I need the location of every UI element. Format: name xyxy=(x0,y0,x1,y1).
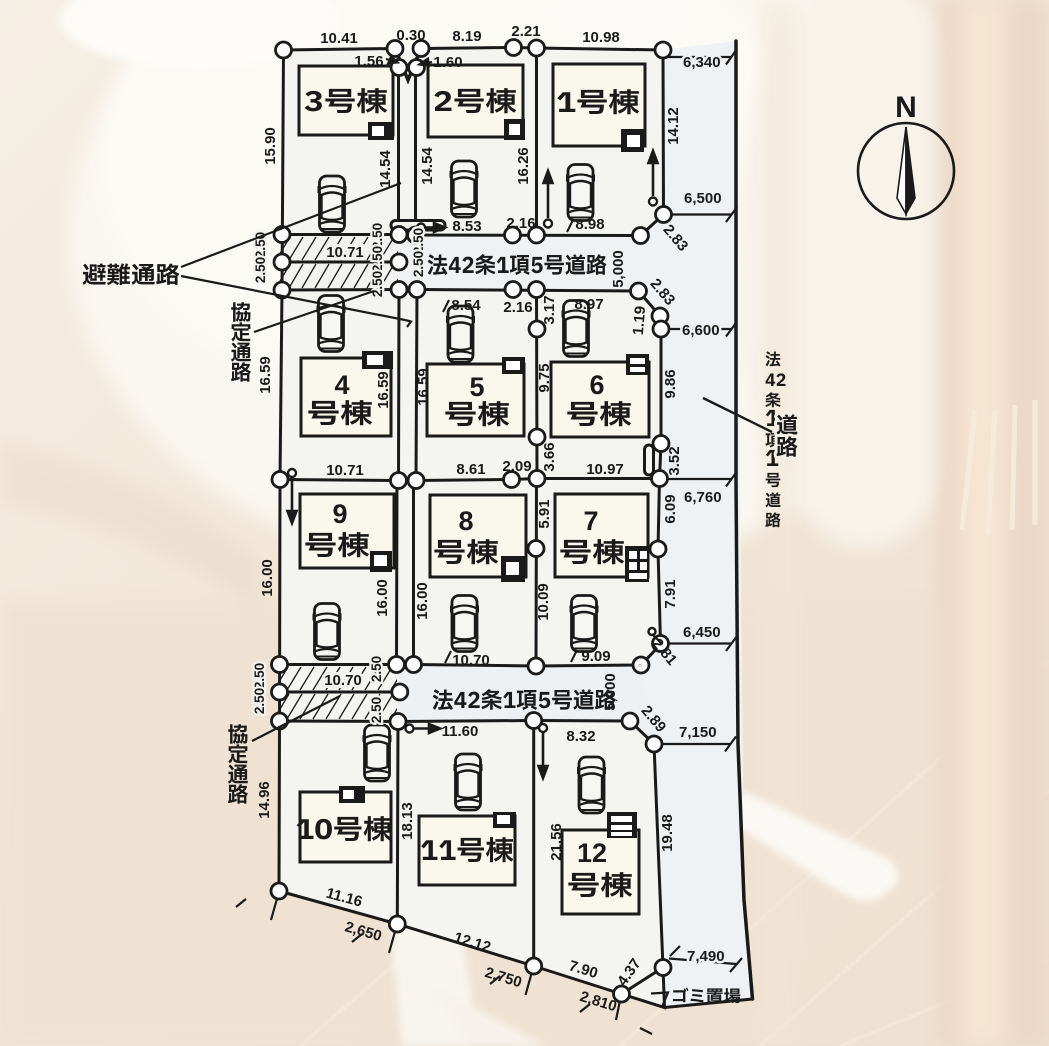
svg-text:11.60: 11.60 xyxy=(442,723,479,740)
svg-text:2.21: 2.21 xyxy=(511,23,540,40)
svg-text:0.30: 0.30 xyxy=(396,27,425,44)
svg-text:6,450: 6,450 xyxy=(683,624,721,641)
svg-text:8.53: 8.53 xyxy=(452,218,481,235)
svg-text:1.19: 1.19 xyxy=(630,305,649,336)
svg-text:2.50: 2.50 xyxy=(370,246,385,272)
svg-text:19.48: 19.48 xyxy=(659,814,676,852)
svg-text:2.50: 2.50 xyxy=(252,663,267,689)
svg-text:9: 9 xyxy=(332,499,347,529)
svg-text:6: 6 xyxy=(589,370,604,400)
svg-text:10.71: 10.71 xyxy=(326,244,364,261)
svg-text:1.60: 1.60 xyxy=(433,54,462,71)
svg-text:2.50: 2.50 xyxy=(369,656,384,682)
svg-text:14.96: 14.96 xyxy=(256,781,273,819)
svg-text:6.09: 6.09 xyxy=(662,494,679,523)
svg-text:8.97: 8.97 xyxy=(574,296,603,313)
svg-text:16.00: 16.00 xyxy=(414,582,431,620)
svg-text:8.32: 8.32 xyxy=(566,728,595,745)
svg-text:6,500: 6,500 xyxy=(684,190,722,207)
svg-text:6,340: 6,340 xyxy=(683,54,721,71)
svg-text:2.09: 2.09 xyxy=(502,458,531,475)
svg-text:7: 7 xyxy=(583,506,598,536)
svg-text:18.13: 18.13 xyxy=(399,802,416,840)
svg-text:15.90: 15.90 xyxy=(262,127,279,165)
svg-text:6,760: 6,760 xyxy=(684,489,722,506)
svg-text:8.19: 8.19 xyxy=(452,28,481,45)
svg-text:16.59: 16.59 xyxy=(257,356,274,394)
svg-text:9.09: 9.09 xyxy=(581,648,610,665)
svg-text:16.59: 16.59 xyxy=(415,368,432,406)
svg-text:N: N xyxy=(895,91,917,124)
svg-text:2.50: 2.50 xyxy=(370,271,385,297)
svg-text:10.41: 10.41 xyxy=(320,30,358,47)
svg-text:10.70: 10.70 xyxy=(324,672,362,689)
svg-text:10.98: 10.98 xyxy=(582,29,620,46)
svg-text:7,150: 7,150 xyxy=(679,724,717,741)
svg-text:1.56: 1.56 xyxy=(354,53,383,70)
svg-text:5: 5 xyxy=(469,372,484,402)
svg-text:6,600: 6,600 xyxy=(682,322,720,339)
svg-text:2.50: 2.50 xyxy=(370,223,385,249)
svg-text:21.56: 21.56 xyxy=(548,823,565,861)
svg-text:16.59: 16.59 xyxy=(375,371,392,409)
svg-text:9.86: 9.86 xyxy=(662,369,679,398)
svg-text:14.12: 14.12 xyxy=(665,107,682,145)
svg-text:16.00: 16.00 xyxy=(259,559,276,597)
svg-text:16.00: 16.00 xyxy=(374,579,391,617)
svg-text:9.75: 9.75 xyxy=(536,363,553,392)
svg-text:16.26: 16.26 xyxy=(515,147,532,185)
svg-text:10.70: 10.70 xyxy=(452,652,490,669)
svg-text:8.54: 8.54 xyxy=(451,297,481,314)
svg-text:14.54: 14.54 xyxy=(419,147,436,185)
svg-text:10.09: 10.09 xyxy=(535,583,552,621)
svg-text:2.50: 2.50 xyxy=(411,228,426,254)
svg-text:3.52: 3.52 xyxy=(666,446,683,475)
svg-text:2.50: 2.50 xyxy=(411,251,426,277)
svg-text:12: 12 xyxy=(577,838,607,868)
svg-text:10.71: 10.71 xyxy=(326,462,364,479)
svg-text:2.50: 2.50 xyxy=(252,688,267,714)
svg-text:8: 8 xyxy=(458,506,473,536)
svg-text:14.54: 14.54 xyxy=(377,150,394,188)
svg-text:5,000: 5,000 xyxy=(610,250,627,288)
svg-text:7,490: 7,490 xyxy=(687,948,725,965)
svg-text:2.16: 2.16 xyxy=(503,299,532,316)
svg-text:2.50: 2.50 xyxy=(253,257,268,283)
svg-text:2.50: 2.50 xyxy=(369,697,384,723)
svg-text:4: 4 xyxy=(334,370,349,400)
svg-text:8.61: 8.61 xyxy=(456,461,485,478)
svg-text:2.16: 2.16 xyxy=(506,215,535,232)
svg-text:3.66: 3.66 xyxy=(541,442,558,471)
svg-text:7.91: 7.91 xyxy=(662,579,679,608)
svg-text:10.97: 10.97 xyxy=(586,461,624,478)
svg-text:5.91: 5.91 xyxy=(536,499,553,528)
svg-text:8.98: 8.98 xyxy=(575,216,604,233)
svg-text:3.17: 3.17 xyxy=(541,295,558,324)
